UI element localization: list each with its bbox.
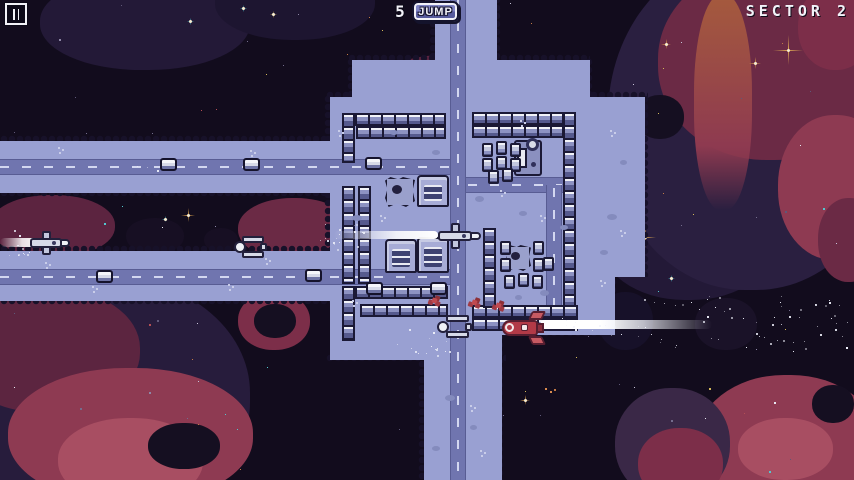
jump-button-label: JUMP <box>418 6 453 18</box>
pause-icon <box>13 9 15 20</box>
hud: 5 JUMP SECTOR 2 <box>0 0 854 480</box>
pause-icon <box>18 9 20 20</box>
jump-charges-count: 5 <box>391 2 409 21</box>
game-screen: 5 JUMP SECTOR 2 <box>0 0 854 480</box>
jump-button[interactable]: JUMP <box>412 1 459 22</box>
sector-label: SECTOR 2 <box>746 2 850 20</box>
pause-button[interactable] <box>5 3 27 25</box>
